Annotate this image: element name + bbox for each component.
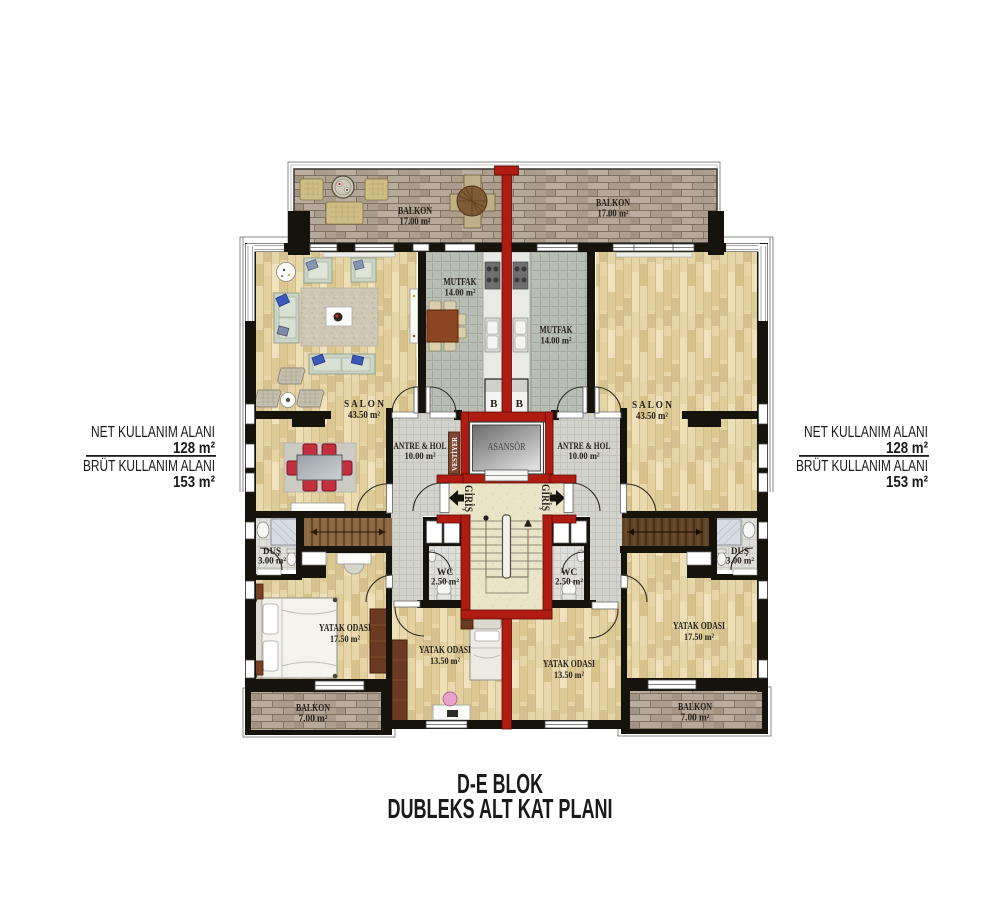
svg-text:17.00 m²: 17.00 m² (598, 209, 629, 220)
svg-text:MUTFAK: MUTFAK (540, 325, 573, 336)
svg-text:ANTRE & HOL: ANTRE & HOL (558, 442, 611, 452)
svg-text:14.00 m²: 14.00 m² (541, 337, 572, 347)
svg-text:17.00 m²: 17.00 m² (400, 217, 431, 228)
svg-text:YATAK ODASI: YATAK ODASI (543, 659, 595, 670)
svg-text:43.50 m²: 43.50 m² (636, 411, 668, 422)
svg-text:NET KULLANIM ALANI: NET KULLANIM ALANI (804, 424, 928, 441)
svg-text:128 m²: 128 m² (173, 440, 215, 457)
svg-text:MUTFAK: MUTFAK (444, 277, 477, 288)
svg-text:B: B (490, 398, 498, 410)
svg-text:13.50 m²: 13.50 m² (554, 671, 584, 681)
svg-text:BALKON: BALKON (678, 702, 712, 713)
svg-text:NET KULLANIM ALANI: NET KULLANIM ALANI (91, 424, 215, 441)
svg-text:YATAK ODASI: YATAK ODASI (419, 645, 471, 656)
svg-text:GİRİŞ: GİRİŞ (462, 485, 476, 512)
svg-text:YATAK ODASI: YATAK ODASI (673, 621, 725, 632)
svg-text:153 m²: 153 m² (173, 474, 215, 491)
svg-text:ASANSÖR: ASANSÖR (488, 441, 526, 453)
svg-text:17.50 m²: 17.50 m² (330, 635, 360, 645)
svg-text:BALKON: BALKON (398, 206, 432, 217)
svg-text:2.50 m²: 2.50 m² (431, 577, 459, 587)
svg-text:BRÜT KULLANIM ALANI: BRÜT KULLANIM ALANI (83, 457, 215, 475)
svg-text:B: B (516, 398, 524, 410)
svg-text:BALKON: BALKON (596, 198, 630, 209)
svg-text:S A L O N: S A L O N (344, 399, 384, 410)
svg-text:GİRİŞ: GİRİŞ (539, 484, 553, 511)
svg-text:BALKON: BALKON (296, 703, 330, 714)
svg-text:BRÜT KULLANIM ALANI: BRÜT KULLANIM ALANI (796, 457, 928, 475)
svg-text:3.00 m²: 3.00 m² (258, 556, 286, 566)
svg-text:7.00 m²: 7.00 m² (299, 714, 328, 725)
svg-text:7.00 m²: 7.00 m² (681, 713, 710, 724)
svg-text:153 m²: 153 m² (886, 474, 928, 491)
svg-text:10.00 m²: 10.00 m² (405, 452, 436, 462)
svg-text:10.00 m²: 10.00 m² (569, 452, 600, 462)
svg-text:13.50 m²: 13.50 m² (430, 657, 460, 667)
svg-text:17.50 m²: 17.50 m² (684, 633, 714, 643)
svg-text:14.00 m²: 14.00 m² (445, 289, 476, 299)
svg-text:DUBLEKS ALT KAT PLANI: DUBLEKS ALT KAT PLANI (388, 793, 613, 824)
svg-text:S A L O N: S A L O N (632, 400, 672, 411)
svg-text:128 m²: 128 m² (886, 440, 928, 457)
svg-text:43.50 m²: 43.50 m² (348, 410, 380, 421)
svg-text:2.50 m²: 2.50 m² (555, 577, 583, 587)
svg-text:VESTİYER: VESTİYER (449, 436, 459, 471)
svg-text:3.00 m²: 3.00 m² (726, 556, 754, 566)
svg-text:ANTRE & HOL: ANTRE & HOL (394, 442, 447, 452)
svg-text:YATAK ODASI: YATAK ODASI (319, 623, 371, 634)
